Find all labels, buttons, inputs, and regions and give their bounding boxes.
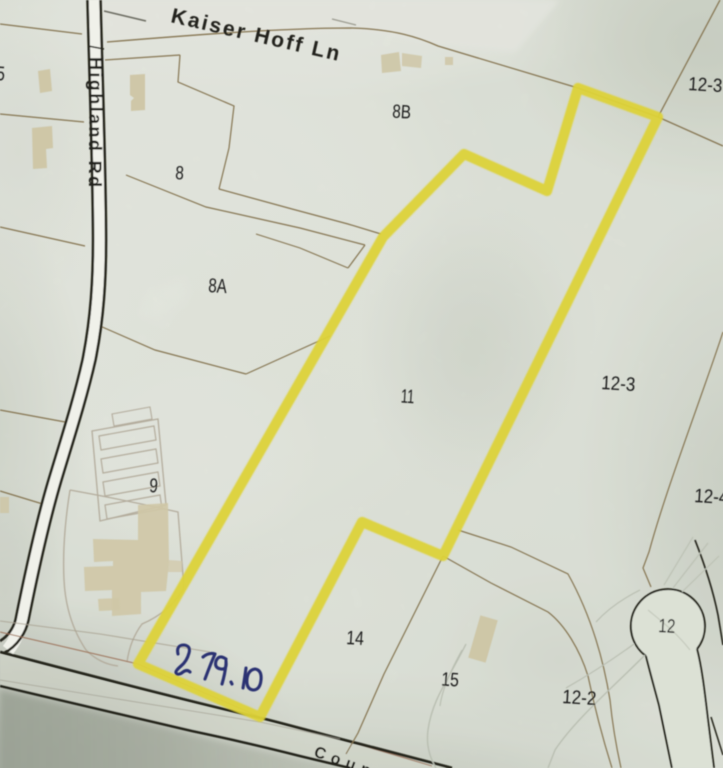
svg-text:15: 15 bbox=[441, 669, 460, 692]
svg-text:12-2: 12-2 bbox=[562, 686, 597, 710]
svg-text:12-3: 12-3 bbox=[601, 372, 636, 396]
svg-text:9: 9 bbox=[149, 475, 159, 497]
svg-text:12: 12 bbox=[658, 615, 676, 638]
svg-text:12-3: 12-3 bbox=[688, 74, 723, 97]
svg-text:Highland Rd: Highland Rd bbox=[85, 57, 106, 190]
svg-text:12-4: 12-4 bbox=[694, 485, 723, 509]
svg-text:8A: 8A bbox=[208, 275, 228, 298]
svg-text:11: 11 bbox=[400, 386, 415, 409]
svg-text:8B: 8B bbox=[392, 102, 412, 124]
svg-text:14: 14 bbox=[346, 627, 365, 650]
svg-text:8: 8 bbox=[175, 163, 185, 184]
